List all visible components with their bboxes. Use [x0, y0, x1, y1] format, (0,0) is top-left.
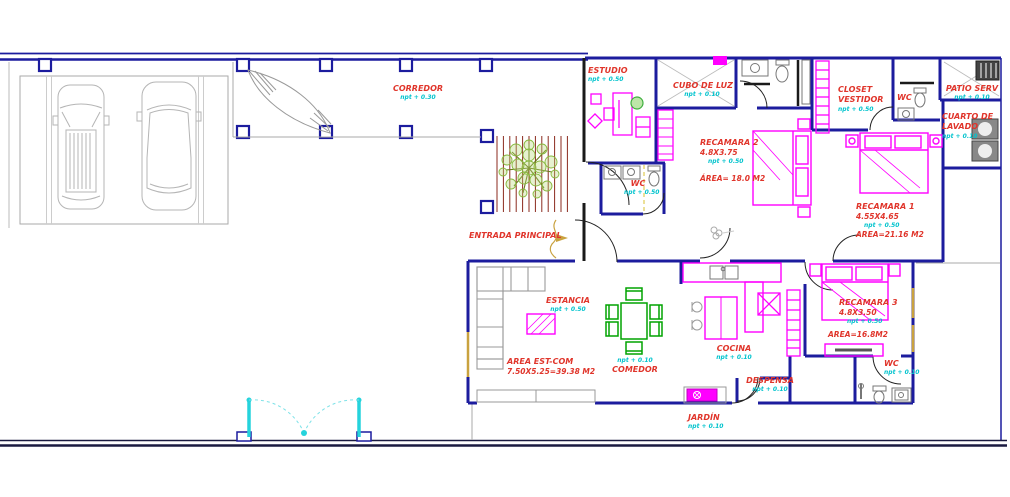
garden-gate [237, 398, 371, 442]
room-npt: npt + 0.50 [542, 306, 594, 314]
room-name: ESTUDIO [588, 66, 632, 76]
label-entrada-principal: ENTRADA PRINCIPAL [469, 231, 562, 241]
bed-icon [753, 119, 811, 217]
room-area-recamara-1: AREA=21.16 M2 [856, 230, 924, 240]
plant-icon [631, 97, 643, 109]
kitchen-sink-icon [710, 266, 738, 279]
room-label-patio-serv: PATIO SERV npt + 0.10 [941, 84, 1003, 103]
room-npt: npt + 0.10 [611, 357, 659, 365]
wall-cabinet-icon [713, 56, 727, 65]
leaf-decoration-icon [248, 70, 331, 133]
room-dimensions: 7.50X5.25=39.38 M2 [507, 367, 595, 377]
room-label-recamara-2: RECAMARA 2 4.8X3.75 npt + 0.50 [700, 138, 759, 167]
room-npt: npt + 0.10 [714, 354, 754, 362]
room-name: CUBO DE LUZ [673, 81, 731, 91]
room-label-corredor: CORREDOR npt + 0.30 [392, 84, 444, 103]
room-label-wc-planta-baja: WC npt + 0.10 [884, 359, 924, 378]
room-npt: npt + 0.10 [744, 386, 796, 394]
closet-strip-rungs [658, 119, 673, 154]
room-area: AREA=16.8M2 [828, 330, 888, 340]
room-label-despensa: DESPENSA npt + 0.10 [744, 376, 796, 395]
room-npt: npt + 0.50 [839, 318, 898, 326]
kitchen-island-icon [692, 297, 737, 339]
floor-plan-canvas: CORREDOR npt + 0.30 ESTUDIO npt + 0.50 C… [0, 0, 1010, 497]
tv-cabinet-icon [825, 344, 883, 356]
room-npt: npt + 0.10 [941, 94, 1003, 102]
columns [39, 59, 493, 213]
room-name: CUARTO DE LAVADO [942, 112, 998, 133]
closet-shelving-icon [816, 61, 829, 133]
room-label-estudio: ESTUDIO npt + 0.50 [588, 66, 632, 85]
room-name: ESTANCIA [542, 296, 594, 306]
room-label-estancia: ESTANCIA npt + 0.50 [542, 296, 594, 315]
label-area-est-com: AREA EST-COM 7.50X5.25=39.38 M2 [507, 357, 595, 377]
room-npt: npt + 0.10 [688, 423, 732, 431]
bathroom-fixtures [859, 384, 912, 404]
floor-plan-drawing [0, 0, 1010, 497]
hall-decor-icon [711, 227, 734, 239]
room-label-wc-recamaras: WC [897, 93, 912, 103]
room-dimensions: 4.8X3.50 [839, 308, 898, 318]
room-label-wc-estudio: WC npt + 0.50 [624, 179, 652, 198]
room-label-cuarto-de-lavado: CUARTO DE LAVADO npt + 0.10 [942, 112, 998, 141]
room-area: AREA=21.16 M2 [856, 230, 924, 240]
room-npt: npt + 0.50 [838, 106, 884, 114]
room-area-recamara-2: ÁREA= 18.0 M2 [700, 174, 765, 184]
boiler-icon [976, 61, 999, 80]
closet-strip-icon [658, 110, 673, 160]
garage [20, 76, 228, 224]
room-label-jardin: JARDÍN npt + 0.10 [688, 413, 732, 432]
room-npt: npt + 0.50 [588, 76, 632, 84]
room-npt: npt + 0.50 [700, 158, 759, 166]
room-label-recamara-3: RECAMARA 3 4.8X3.50 npt + 0.50 [839, 298, 898, 327]
room-name: AREA EST-COM [507, 357, 595, 367]
room-name: WC [897, 93, 912, 103]
room-npt: npt + 0.10 [942, 133, 998, 141]
bathroom-fixtures [742, 60, 810, 104]
room-area-recamara-3: AREA=16.8M2 [828, 330, 888, 340]
room-name: RECAMARA 3 [839, 298, 898, 308]
room-npt: npt + 0.30 [392, 94, 444, 102]
room-name: PATIO SERV [941, 84, 1003, 94]
car-icon [53, 85, 109, 209]
car-icon [137, 82, 201, 210]
dining-table-icon [606, 288, 662, 354]
bed-icon [846, 133, 942, 193]
room-npt: npt + 0.10 [884, 369, 924, 377]
room-name: JARDÍN [688, 413, 732, 423]
room-dimensions: 4.8X3.75 [700, 148, 759, 158]
room-name: DESPENSA [744, 376, 796, 386]
stove-icon [684, 387, 726, 403]
pantry-shelf-icon [758, 290, 800, 356]
room-area: ÁREA= 18.0 M2 [700, 174, 765, 184]
room-label-recamara-1: RECAMARA 1 4.55X4.65 npt + 0.50 [856, 202, 915, 231]
room-name: CLOSET VESTIDOR [838, 85, 884, 106]
rug-icon [527, 314, 555, 334]
room-name: COCINA [714, 344, 754, 354]
room-name: COMEDOR [611, 365, 659, 375]
room-dimensions: 4.55X4.65 [856, 212, 915, 222]
room-label-cubo-de-luz: CUBO DE LUZ npt + 0.10 [673, 81, 731, 100]
room-npt: npt + 0.10 [673, 91, 731, 99]
room-npt: npt + 0.50 [624, 189, 652, 197]
room-name: WC [624, 179, 652, 189]
room-label-closet-vestidor: CLOSET VESTIDOR npt + 0.50 [838, 85, 884, 114]
room-name: CORREDOR [392, 84, 444, 94]
room-name: RECAMARA 1 [856, 202, 915, 212]
room-label-comedor: npt + 0.10 COMEDOR [611, 357, 659, 376]
room-name: ENTRADA PRINCIPAL [469, 231, 562, 241]
room-name: WC [884, 359, 924, 369]
room-name: RECAMARA 2 [700, 138, 759, 148]
sofa-icon [477, 267, 545, 369]
room-label-cocina: COCINA npt + 0.10 [714, 344, 754, 363]
